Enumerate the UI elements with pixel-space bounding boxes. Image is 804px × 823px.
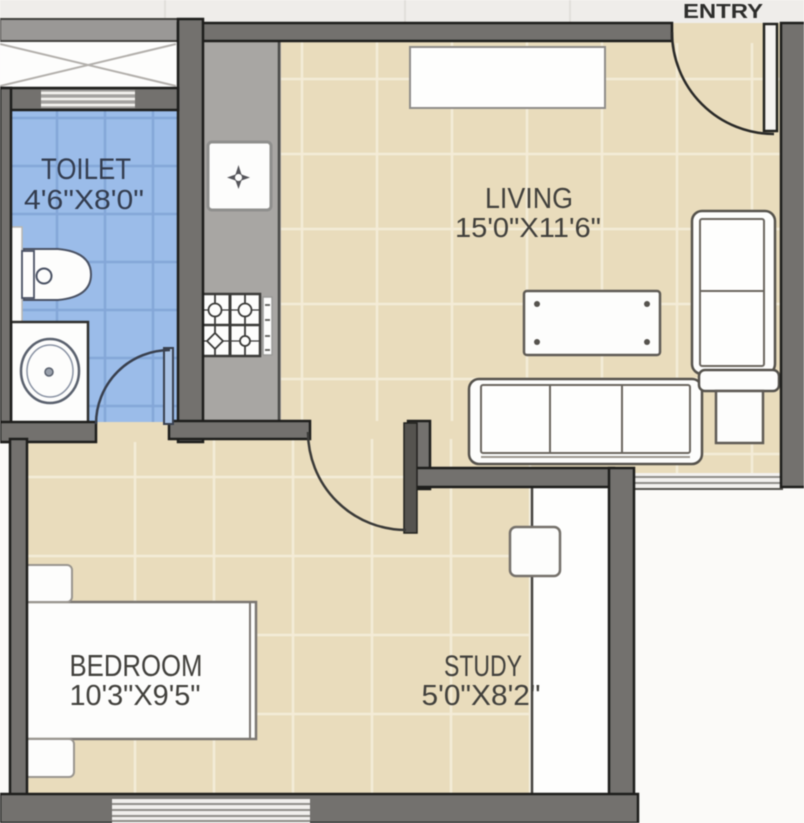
svg-text:STUDY: STUDY — [444, 650, 522, 683]
svg-text:10'3"X9'5": 10'3"X9'5" — [70, 680, 201, 712]
svg-text:4'6"X8'0": 4'6"X8'0" — [24, 184, 144, 215]
svg-text:15'0"X11'6": 15'0"X11'6" — [455, 212, 601, 243]
svg-text:ENTRY: ENTRY — [683, 1, 764, 23]
svg-text:LIVING: LIVING — [485, 183, 573, 215]
svg-text:5'0"X8'2": 5'0"X8'2" — [422, 680, 541, 712]
svg-text:BEDROOM: BEDROOM — [70, 648, 203, 683]
svg-text:TOILET: TOILET — [41, 153, 131, 186]
